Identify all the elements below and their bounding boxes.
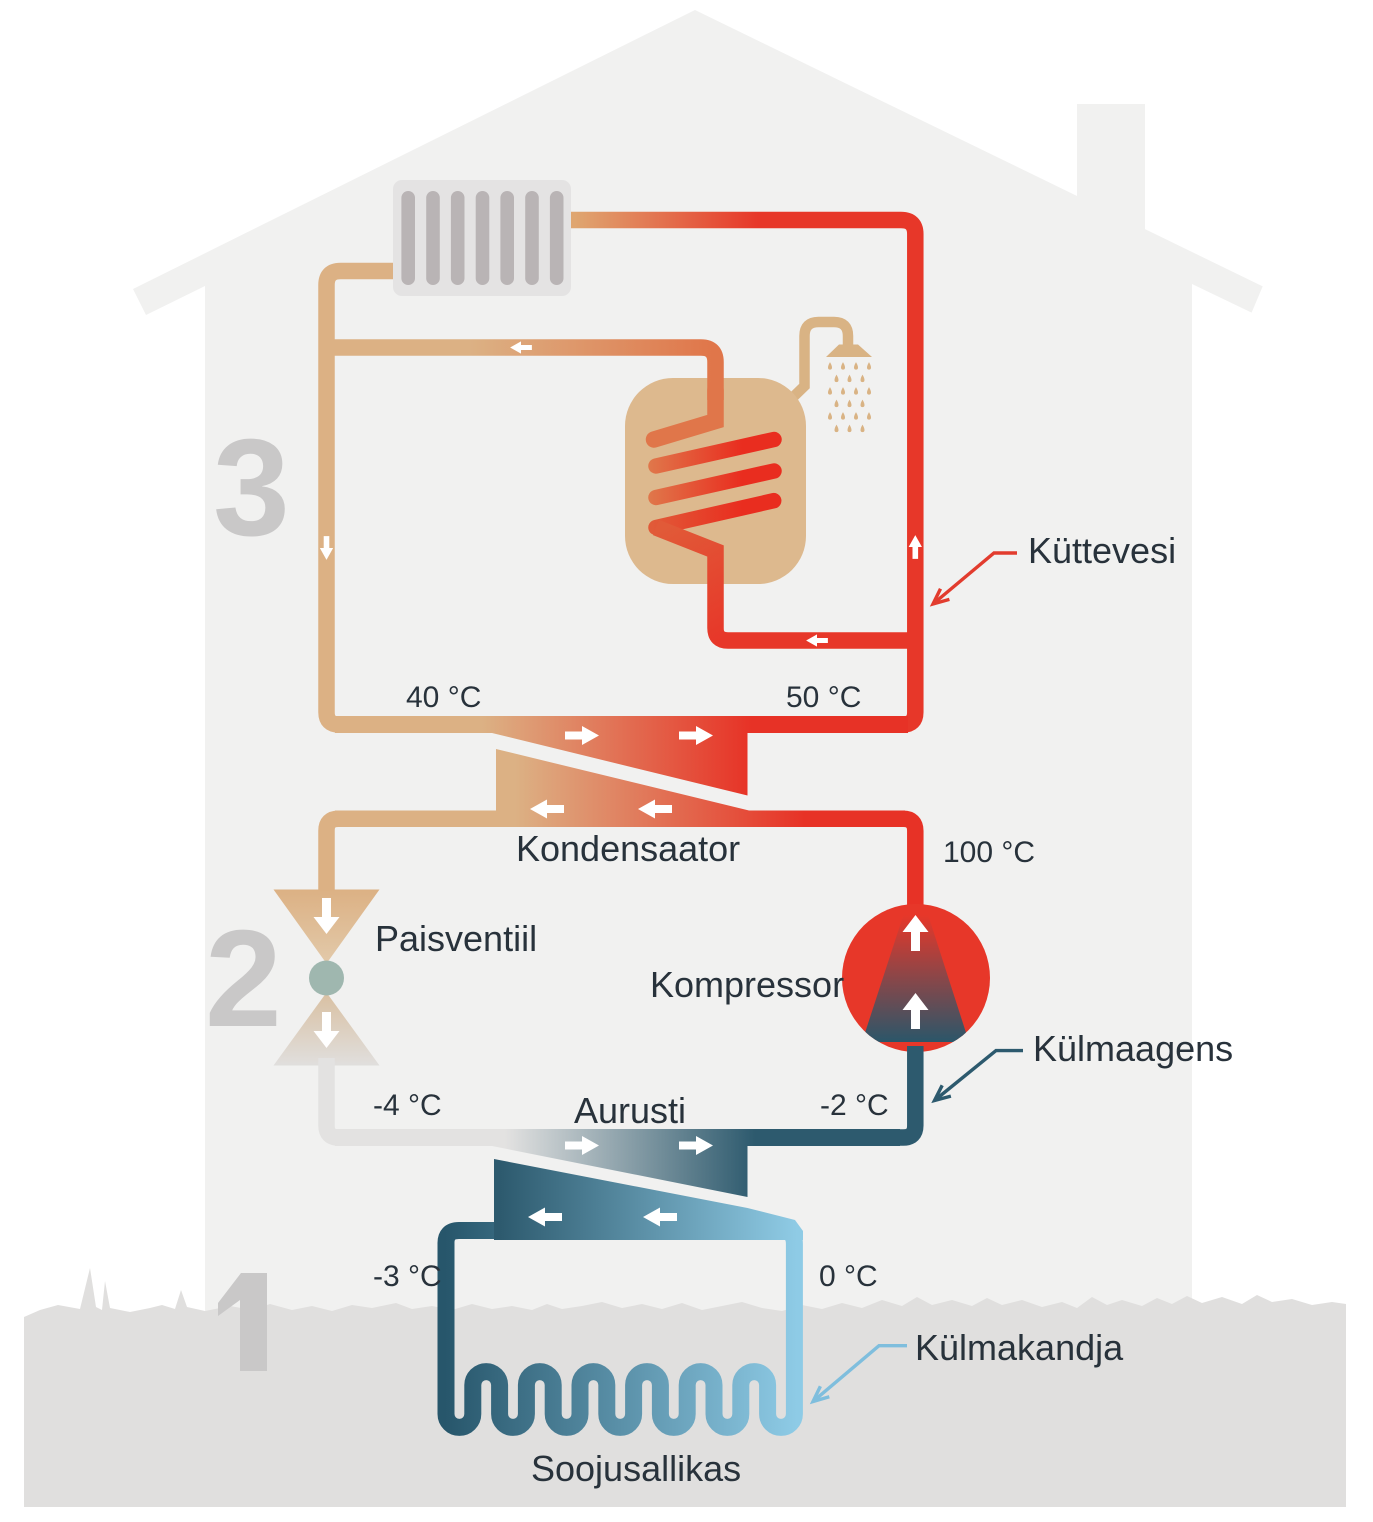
svg-text:0 °C: 0 °C <box>819 1260 878 1293</box>
svg-text:50 °C: 50 °C <box>786 681 861 714</box>
svg-text:Kondensaator: Kondensaator <box>516 828 740 869</box>
svg-text:Kompressor: Kompressor <box>650 964 844 1005</box>
svg-text:3: 3 <box>213 411 290 565</box>
svg-text:Külmakandja: Külmakandja <box>915 1327 1124 1368</box>
svg-text:-3 °C: -3 °C <box>373 1260 442 1293</box>
svg-text:-4 °C: -4 °C <box>373 1089 442 1122</box>
svg-text:Aurusti: Aurusti <box>574 1090 686 1131</box>
svg-text:100 °C: 100 °C <box>943 836 1035 869</box>
svg-text:Küttevesi: Küttevesi <box>1028 530 1176 571</box>
svg-text:40 °C: 40 °C <box>406 681 481 714</box>
svg-text:Paisventiil: Paisventiil <box>375 918 537 959</box>
svg-text:2: 2 <box>205 902 282 1056</box>
svg-text:Soojusallikas: Soojusallikas <box>531 1448 741 1489</box>
svg-text:Külmaagens: Külmaagens <box>1033 1028 1233 1069</box>
svg-text:-2 °C: -2 °C <box>820 1089 889 1122</box>
